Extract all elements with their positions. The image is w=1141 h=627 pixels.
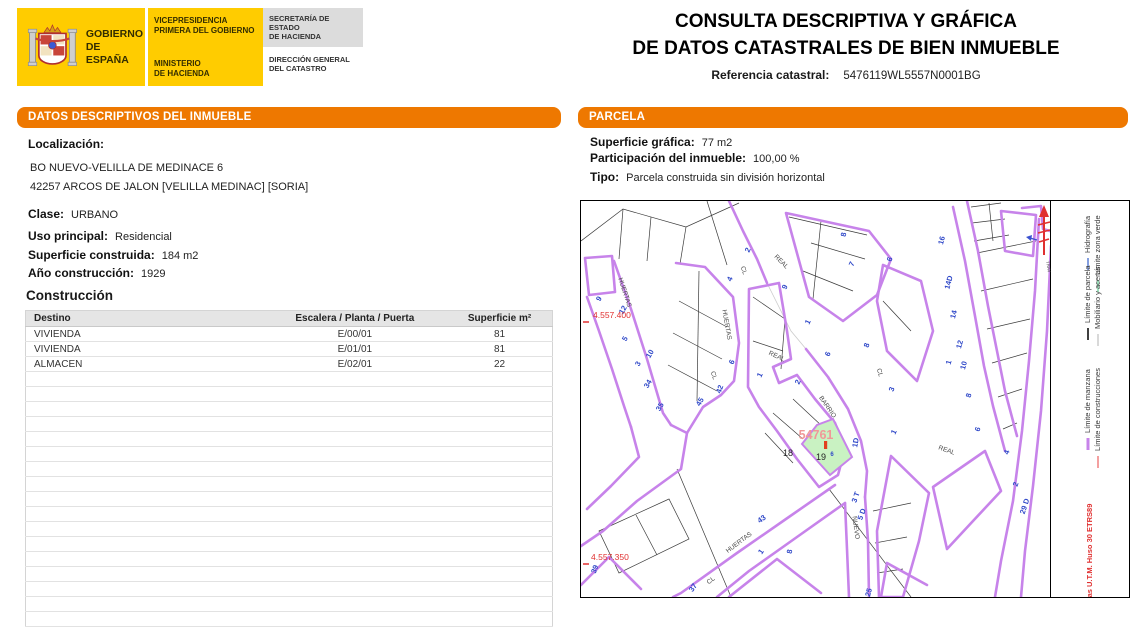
table-cell-empty <box>263 402 447 417</box>
table-cell-empty <box>447 582 552 597</box>
table-cell-empty <box>26 552 263 567</box>
table-cell-empty <box>26 582 263 597</box>
cadastral-map-svg: HUERTASHUERTASCLCLREALREALBARRIOCLNUEVOR… <box>581 201 1129 597</box>
table-cell-empty <box>263 612 447 627</box>
table-empty-row <box>26 402 553 417</box>
table-empty-row <box>26 597 553 612</box>
table-cell-empty <box>26 462 263 477</box>
spain-coat-of-arms-icon <box>27 18 78 76</box>
table-cell-empty <box>263 477 447 492</box>
legend-zona-verde: Límite zona verde <box>1093 215 1102 275</box>
table-cell-empty <box>447 507 552 522</box>
highlighted-parcel-label: 54761 <box>799 428 834 442</box>
table-cell-empty <box>26 417 263 432</box>
legend-parcela: Límite de parcela <box>1083 265 1092 323</box>
table-cell-empty <box>26 477 263 492</box>
secretaria-box: SECRETARÍA DE ESTADO DE HACIENDA <box>263 8 363 47</box>
construccion-section-title: Construcción <box>26 288 113 303</box>
table-cell-empty <box>447 447 552 462</box>
column-header-superficie: Superficie m² <box>447 311 552 327</box>
table-empty-row <box>26 462 553 477</box>
cadastral-map: HUERTASHUERTASCLCLREALREALBARRIOCLNUEVOR… <box>580 200 1130 598</box>
parcel-number: 18 <box>783 448 793 458</box>
address-line1: BO NUEVO-VELILLA DE MEDINACE 6 <box>30 162 223 174</box>
table-cell-empty <box>263 417 447 432</box>
table-cell-empty <box>26 492 263 507</box>
table-cell: E/01/01 <box>263 342 447 357</box>
superficie-grafica-label: Superficie gráfica: <box>590 135 695 149</box>
table-cell-empty <box>447 372 552 387</box>
table-empty-row <box>26 582 553 597</box>
panel-title-inmueble-1: DATOS DESCRIPTIVOS DEL <box>28 111 190 123</box>
crs-label: Coordenadas U.T.M. Huso 30 ETRS89 <box>1085 504 1094 597</box>
table-cell-empty <box>263 432 447 447</box>
referencia-catastral-value: 5476119WL5557N0001BG <box>843 70 980 82</box>
table-cell-empty <box>263 447 447 462</box>
table-cell-empty <box>447 522 552 537</box>
page-title-line1: CONSULTA DESCRIPTIVA Y GRÁFICA <box>565 8 1127 35</box>
table-empty-row <box>26 537 553 552</box>
table-empty-row <box>26 477 553 492</box>
table-cell-empty <box>447 387 552 402</box>
ministerio-line1: MINISTERIO <box>154 59 257 69</box>
table-cell: ALMACEN <box>26 357 263 372</box>
tipo-row: Tipo:Parcela construida sin división hor… <box>590 168 825 186</box>
legend-hidrografia: Hidrografía <box>1083 215 1092 253</box>
participacion-label: Participación del inmueble: <box>590 151 746 165</box>
panel-header-inmueble: DATOS DESCRIPTIVOS DEL INMUEBLE <box>17 107 561 128</box>
table-cell-empty <box>26 537 263 552</box>
table-row: ALMACENE/02/0122 <box>26 357 553 372</box>
table-cell-empty <box>263 537 447 552</box>
table-cell-empty <box>447 432 552 447</box>
parcel-number: 19 <box>816 452 826 462</box>
table-cell-empty <box>263 492 447 507</box>
table-empty-row <box>26 552 553 567</box>
table-cell-empty <box>447 477 552 492</box>
secretaria-line1: SECRETARÍA DE ESTADO <box>269 14 357 32</box>
tipo-label: Tipo: <box>590 170 619 184</box>
table-cell: E/02/01 <box>263 357 447 372</box>
table-empty-row <box>26 432 553 447</box>
utm-coordinate: 4.557.350 <box>591 552 629 562</box>
anio-construccion-label: Año construcción: <box>28 266 134 280</box>
clase-row: Clase:URBANO <box>28 205 118 223</box>
direccion-line2: DEL CATASTRO <box>269 64 357 73</box>
participacion-value: 100,00 % <box>753 153 799 165</box>
table-cell: 81 <box>447 342 552 357</box>
referencia-catastral-label: Referencia catastral: <box>711 68 829 82</box>
legend-mobiliario: Mobiliario y aceras <box>1093 266 1102 329</box>
legend-construcciones: Límite de construcciones <box>1093 368 1102 451</box>
table-empty-row <box>26 507 553 522</box>
table-cell-empty <box>26 432 263 447</box>
table-cell-empty <box>26 372 263 387</box>
construccion-table: Destino Escalera / Planta / Puerta Super… <box>25 310 553 627</box>
table-cell-empty <box>263 387 447 402</box>
table-header-row: Destino Escalera / Planta / Puerta Super… <box>26 311 553 327</box>
column-header-destino: Destino <box>26 311 263 327</box>
gobierno-line2: DE ESPAÑA <box>86 41 145 67</box>
table-empty-row <box>26 522 553 537</box>
participacion-row: Participación del inmueble:100,00 % <box>590 149 800 167</box>
vicepresidencia-line1: VICEPRESIDENCIA <box>154 16 257 26</box>
table-empty-row <box>26 387 553 402</box>
table-empty-row <box>26 492 553 507</box>
table-row: VIVIENDAE/00/0181 <box>26 327 553 342</box>
building-marker <box>824 441 827 449</box>
anio-construccion-row: Año construcción:1929 <box>28 264 166 282</box>
table-empty-row <box>26 567 553 582</box>
panel-title-parcela: PARCELA <box>589 111 645 123</box>
legend-manzana: Límite de manzana <box>1083 368 1092 433</box>
superficie-construida-value: 184 m2 <box>162 250 199 262</box>
secretaria-line2: DE HACIENDA <box>269 32 357 41</box>
table-cell-empty <box>447 462 552 477</box>
gobierno-line1: GOBIERNO <box>86 28 145 41</box>
document-title-block: CONSULTA DESCRIPTIVA Y GRÁFICA DE DATOS … <box>565 8 1127 82</box>
table-empty-row <box>26 447 553 462</box>
table-cell-empty <box>263 582 447 597</box>
tipo-value: Parcela construida sin división horizont… <box>626 172 825 184</box>
table-cell-empty <box>26 567 263 582</box>
table-cell: VIVIENDA <box>26 342 263 357</box>
table-cell-empty <box>263 522 447 537</box>
superficie-construida-row: Superficie construida:184 m2 <box>28 246 198 264</box>
table-cell-empty <box>447 417 552 432</box>
table-cell-empty <box>263 597 447 612</box>
table-cell-empty <box>447 567 552 582</box>
superficie-construida-label: Superficie construida: <box>28 248 155 262</box>
uso-value: Residencial <box>115 231 172 243</box>
column-header-escalera: Escalera / Planta / Puerta <box>263 311 447 327</box>
table-cell-empty <box>26 612 263 627</box>
table-cell-empty <box>263 372 447 387</box>
table-cell-empty <box>447 537 552 552</box>
table-cell: VIVIENDA <box>26 327 263 342</box>
table-cell: E/00/01 <box>263 327 447 342</box>
table-cell-empty <box>26 507 263 522</box>
table-empty-row <box>26 417 553 432</box>
table-cell-empty <box>26 597 263 612</box>
table-cell: 81 <box>447 327 552 342</box>
table-cell-empty <box>263 552 447 567</box>
table-cell: 22 <box>447 357 552 372</box>
panel-header-parcela: PARCELA <box>578 107 1128 128</box>
table-cell-empty <box>26 447 263 462</box>
localizacion-label: Localización: <box>28 137 104 151</box>
table-cell-empty <box>26 387 263 402</box>
superficie-grafica-value: 77 m2 <box>702 137 733 149</box>
table-cell-empty <box>263 567 447 582</box>
table-cell-empty <box>26 522 263 537</box>
table-cell-empty <box>26 402 263 417</box>
ministerio-line2: DE HACIENDA <box>154 69 257 79</box>
table-cell-empty <box>447 597 552 612</box>
address-line2: 42257 ARCOS DE JALON [VELILLA MEDINAC] [… <box>30 181 308 193</box>
page-title-line2: DE DATOS CATASTRALES DE BIEN INMUEBLE <box>565 35 1127 62</box>
direccion-box: DIRECCIÓN GENERAL DEL CATASTRO <box>263 47 363 86</box>
gobierno-espana-box: GOBIERNO DE ESPAÑA <box>17 8 145 86</box>
table-cell-empty <box>447 552 552 567</box>
clase-label: Clase: <box>28 207 64 221</box>
clase-value: URBANO <box>71 209 118 221</box>
table-cell-empty <box>263 462 447 477</box>
table-cell-empty <box>447 612 552 627</box>
table-row: VIVIENDAE/01/0181 <box>26 342 553 357</box>
table-empty-row <box>26 612 553 627</box>
table-cell-empty <box>447 402 552 417</box>
direccion-line1: DIRECCIÓN GENERAL <box>269 55 357 64</box>
gobierno-logo-block: GOBIERNO DE ESPAÑA VICEPRESIDENCIA PRIME… <box>17 8 363 86</box>
uso-row: Uso principal:Residencial <box>28 227 172 245</box>
table-empty-row <box>26 372 553 387</box>
table-cell-empty <box>447 492 552 507</box>
utm-coordinate: 4.557.400 <box>593 310 631 320</box>
panel-title-inmueble-2: INMUEBLE <box>190 111 252 123</box>
uso-label: Uso principal: <box>28 229 108 243</box>
table-cell-empty <box>263 507 447 522</box>
vicepresidencia-line2: PRIMERA DEL GOBIERNO <box>154 26 257 36</box>
anio-construccion-value: 1929 <box>141 268 165 280</box>
ministry-box: VICEPRESIDENCIA PRIMERA DEL GOBIERNO MIN… <box>145 8 263 86</box>
